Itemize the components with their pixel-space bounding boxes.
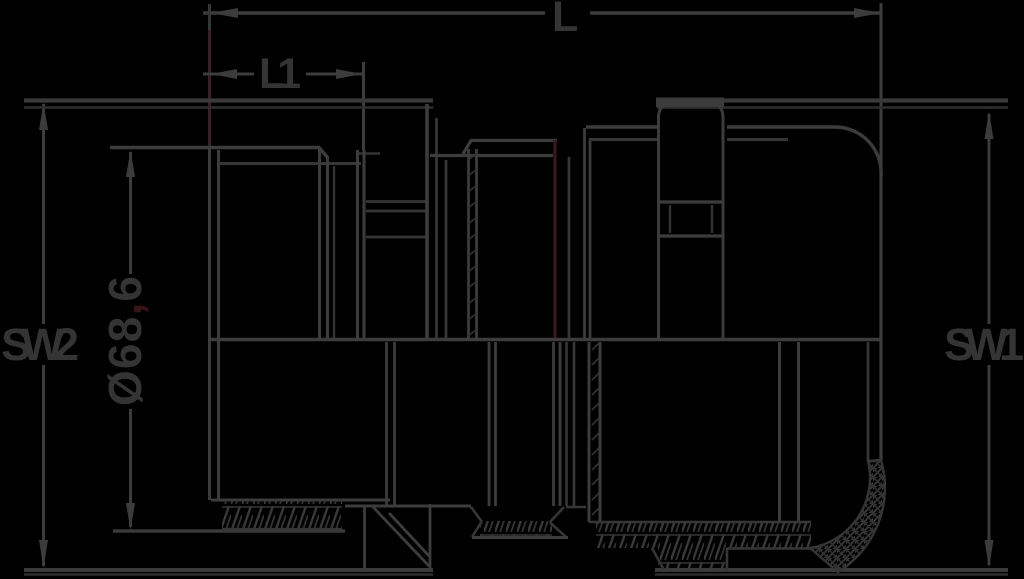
svg-text:L: L (552, 0, 578, 41)
svg-text:Ø68,6: Ø68,6 (99, 276, 151, 406)
svg-text:SW2: SW2 (1, 319, 79, 370)
svg-text:SW1: SW1 (944, 319, 1024, 370)
svg-text:L1: L1 (259, 50, 301, 98)
